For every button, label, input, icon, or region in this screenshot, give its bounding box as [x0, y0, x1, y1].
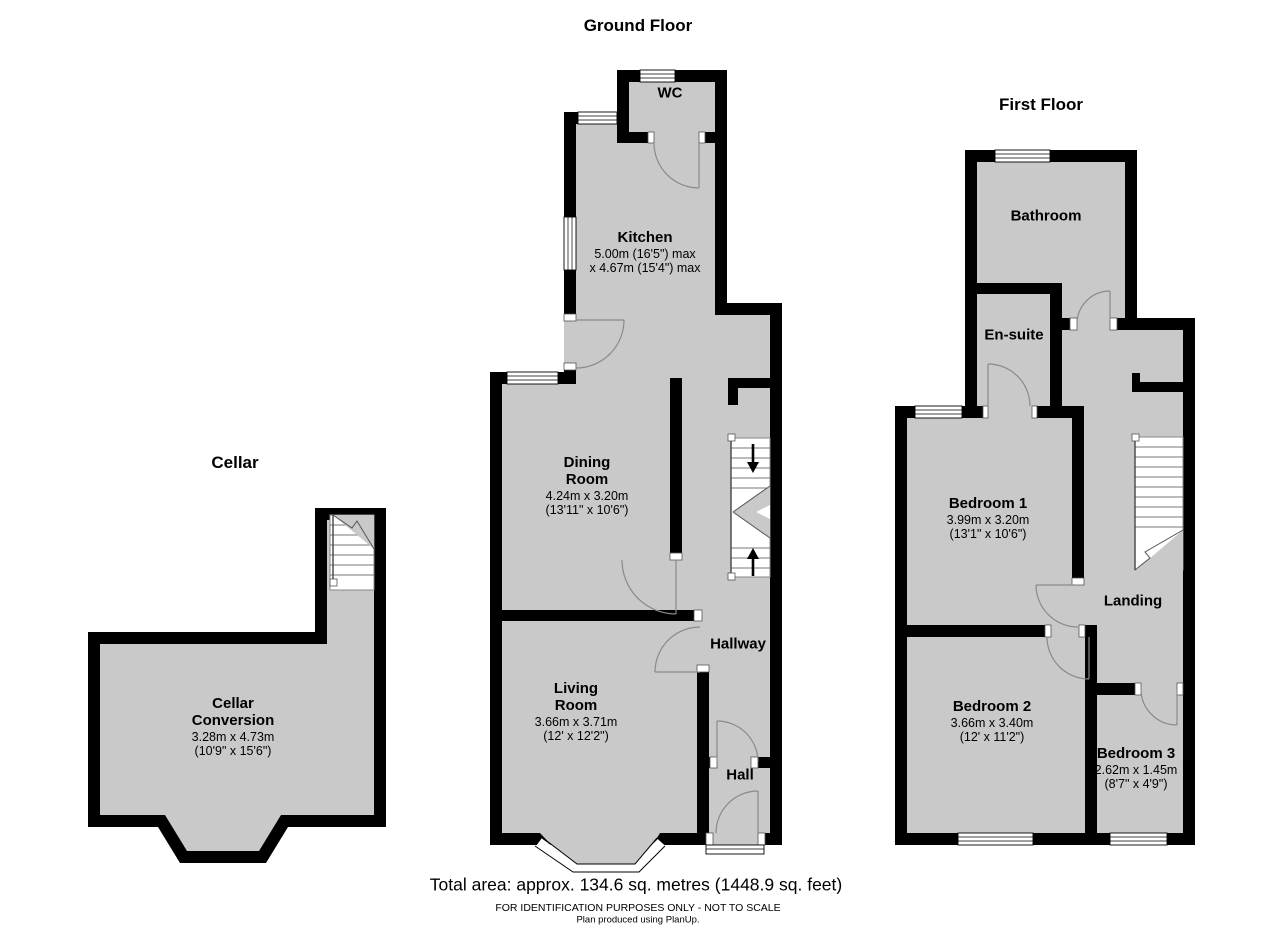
room-label-wc: WC [658, 86, 683, 103]
disclaimer-text: FOR IDENTIFICATION PURPOSES ONLY - NOT T… [495, 902, 780, 914]
room-label-bedroom-2: Bedroom 2 3.66m x 3.40m (12' x 11'2") [951, 699, 1034, 745]
room-label-en-suite: En-suite [984, 328, 1043, 345]
total-area-text: Total area: approx. 134.6 sq. metres (14… [430, 875, 842, 896]
room-label-dining-room: Dining Room 4.24m x 3.20m (13'11" x 10'6… [546, 455, 629, 517]
room-label-living-room: Living Room 3.66m x 3.71m (12' x 12'2") [535, 681, 618, 743]
first-floor-title: First Floor [999, 95, 1083, 115]
first-floor-plan [895, 150, 1195, 845]
ground-floor-title: Ground Floor [584, 16, 693, 36]
room-label-bedroom-3: Bedroom 3 2.62m x 1.45m (8'7" x 4'9") [1095, 746, 1178, 792]
first-stairs [1132, 434, 1183, 571]
bay-window [535, 833, 665, 872]
cellar-title: Cellar [211, 453, 258, 473]
floorplan-canvas [0, 0, 1280, 931]
room-label-cellar-conversion: Cellar Conversion 3.28m x 4.73m (10'9" x… [192, 696, 275, 758]
room-label-hall: Hall [726, 768, 754, 785]
room-label-landing: Landing [1104, 594, 1162, 611]
room-label-bedroom-1: Bedroom 1 3.99m x 3.20m (13'1" x 10'6") [947, 496, 1030, 542]
room-label-bathroom: Bathroom [1011, 209, 1082, 226]
room-label-kitchen: Kitchen 5.00m (16'5") max x 4.67m (15'4"… [589, 230, 700, 276]
cellar-stairs [330, 515, 374, 590]
cellar-plan [88, 508, 386, 863]
ground-stairs [728, 434, 770, 580]
room-label-hallway: Hallway [710, 637, 766, 654]
credit-text: Plan produced using PlanUp. [576, 915, 699, 926]
floorplan-page: Ground Floor WC Kitchen 5.00m (16'5") ma… [0, 0, 1280, 931]
ground-floor-plan [490, 70, 782, 872]
